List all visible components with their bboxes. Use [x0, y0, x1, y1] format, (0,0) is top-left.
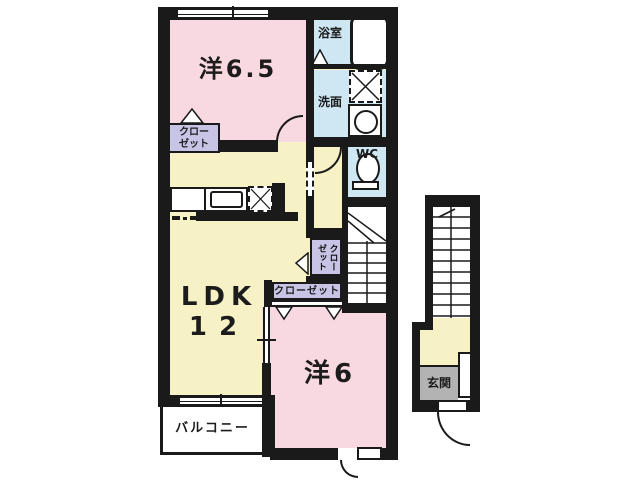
washroom-label: 洗面 [312, 96, 348, 110]
wall-segment [470, 195, 480, 412]
wall-opening-dashed [306, 162, 314, 196]
folding-door-icon [275, 306, 293, 321]
wall-segment [425, 195, 433, 330]
wall-segment [342, 207, 348, 313]
window-tick [232, 6, 234, 20]
closet-vertical: ゼット クロー [310, 238, 342, 276]
kitchen-counter-divider [204, 187, 206, 212]
bathroom-label: 浴室 [312, 27, 348, 41]
washbasin-bowl-icon [354, 110, 378, 134]
x-cross-icon [250, 188, 271, 210]
door-arc [437, 412, 470, 446]
folding-door-icon [180, 108, 204, 124]
folding-door-icon [325, 306, 343, 321]
wall-segment [306, 228, 348, 238]
room-western-6-5-label: 洋6.5 [170, 56, 306, 84]
closet-top: クロー ゼット [168, 123, 220, 153]
closet-vertical-col-left: ゼット [316, 244, 325, 271]
wall-segment [272, 183, 285, 213]
wall-segment [342, 197, 386, 207]
closet-top-label-2: ゼット [170, 139, 218, 151]
wc-label: WC [348, 148, 386, 162]
kitchen-counter-front [196, 212, 298, 221]
wall-segment [314, 64, 386, 69]
wall-segment [158, 7, 170, 407]
counter-mark [190, 216, 196, 220]
range-space-icon [248, 186, 273, 212]
stairs-outdoor [433, 207, 470, 318]
wall-segment [342, 303, 398, 313]
wall-segment [412, 322, 420, 412]
washbasin-icon [348, 104, 382, 137]
closet-top-label-1: クロー [170, 127, 218, 139]
window-tick [220, 394, 222, 407]
room-western-6-label: 洋6 [280, 360, 380, 390]
wall-segment [386, 7, 398, 460]
balcony-label: バルコニー [163, 422, 262, 437]
balcony-wall [160, 452, 270, 455]
floor-plan-canvas: クロー ゼット ゼット クロー クローゼット [0, 0, 640, 480]
wall-segment [306, 137, 386, 147]
ldk-label-line1: LDK [163, 283, 275, 313]
bathtub-icon [350, 14, 389, 70]
counter-mark [183, 217, 187, 220]
window-symbol [178, 10, 268, 17]
door-arc [340, 460, 358, 478]
stove-icon [210, 191, 243, 208]
wall-segment [270, 448, 338, 460]
ldk-label-line2: 12 [163, 313, 275, 343]
counter-mark [172, 216, 180, 220]
entrance-label: 玄関 [420, 377, 458, 391]
closet-vertical-col-right: クロー [327, 244, 336, 271]
washing-machine-pan-icon [349, 70, 382, 103]
door-leaf [437, 400, 468, 412]
entrance-divider [420, 365, 458, 367]
folding-door-icon [295, 252, 309, 275]
wall-segment [381, 448, 398, 460]
closet-horizontal: クローゼット [272, 282, 342, 300]
closet-horizontal-label: クローゼット [274, 286, 340, 298]
door-leaf [357, 447, 382, 460]
ldk-label: LDK 12 [163, 283, 275, 343]
toilet-tank-icon [352, 181, 379, 190]
stairs-interior [348, 207, 386, 303]
x-cross-icon [351, 72, 380, 101]
wall-segment [220, 140, 278, 152]
wall-segment [306, 276, 348, 282]
